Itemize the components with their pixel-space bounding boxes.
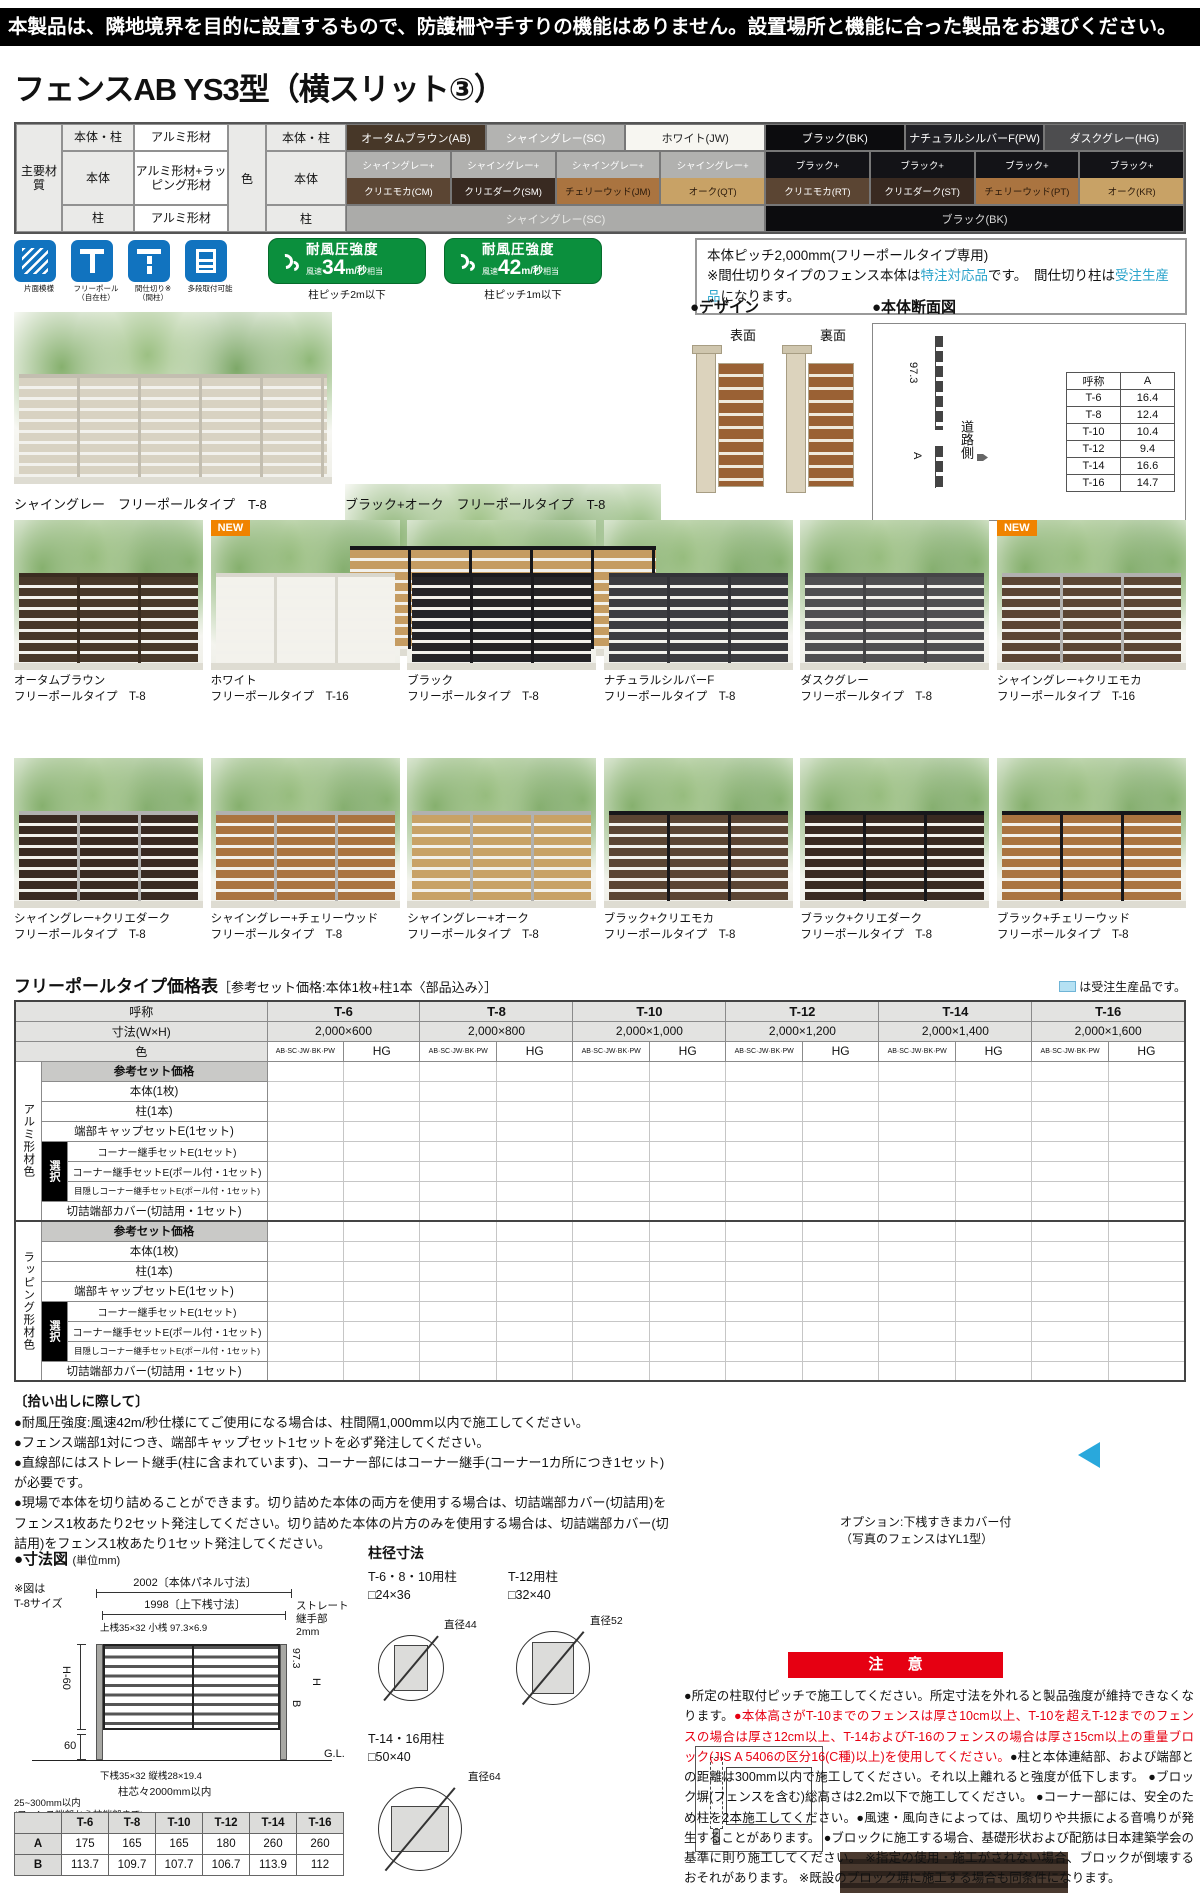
price-cell — [496, 1281, 572, 1301]
price-cell — [344, 1221, 420, 1241]
price-cell — [1032, 1161, 1108, 1181]
notes-title: 〔拾い出しに際して〕 — [14, 1392, 674, 1413]
color-chip-combo: シャイングレー+チェリーウッド(JM) — [556, 151, 661, 205]
price-cell — [726, 1321, 802, 1341]
post-item: T-14・16用柱□50×40 — [368, 1731, 444, 1766]
price-cell — [726, 1281, 802, 1301]
price-cell — [1108, 1241, 1185, 1261]
xsec-row: T-129.4 — [1067, 441, 1175, 458]
ab-cell: 107.7 — [156, 1855, 203, 1876]
material-row-value: アルミ形材 — [134, 205, 228, 232]
post-item: T-6・8・10用柱□24×36 — [368, 1569, 457, 1604]
price-cell — [1108, 1121, 1185, 1141]
card-caption: ダスクグレーフリーポールタイプ T-8 — [800, 674, 989, 705]
price-cell — [1032, 1261, 1108, 1281]
price-header-row: 呼称T-6T-8T-10T-12T-14T-16 — [15, 1001, 1185, 1021]
post-dia-label: 直径52 — [590, 1613, 623, 1628]
price-cell — [879, 1221, 955, 1241]
price-cell — [1108, 1061, 1185, 1081]
ab-cell: 106.7 — [203, 1855, 250, 1876]
price-cell — [726, 1161, 802, 1181]
price-cell — [420, 1181, 496, 1201]
price-cell — [879, 1121, 955, 1141]
price-cell — [573, 1081, 649, 1101]
ab-col: T-12 — [203, 1813, 250, 1834]
combo-wood: オーク(QT) — [661, 178, 764, 204]
xsec-name: T-6 — [1067, 390, 1121, 407]
fence-graphic — [19, 573, 198, 663]
xsec-row: T-812.4 — [1067, 407, 1175, 424]
post-circle — [378, 1635, 444, 1701]
price-cell — [1032, 1341, 1108, 1361]
xsec-col-header: A — [1121, 373, 1175, 390]
feature-icon-block: 多段取付可能 — [185, 240, 235, 303]
ab-row-a: A175165165180260260 — [15, 1834, 344, 1855]
card-caption: ナチュラルシルバーFフリーポールタイプ T-8 — [604, 674, 793, 705]
hero-caption: ブラック+オーク フリーポールタイプ T-8 — [345, 494, 605, 513]
fence-graphic — [412, 573, 591, 663]
price-cell — [496, 1321, 572, 1341]
price-cell — [955, 1081, 1031, 1101]
price-cell — [879, 1261, 955, 1281]
price-cell — [1108, 1361, 1185, 1381]
price-cell — [1032, 1181, 1108, 1201]
price-cell — [802, 1281, 878, 1301]
combo-wood: クリエダーク(SM) — [452, 178, 555, 204]
combo-top: ブラック+ — [1080, 152, 1183, 178]
combo-wood: チェリーウッド(PT) — [976, 178, 1079, 204]
price-row-label: 目隠しコーナー継手セットE(ポール付・1セット) — [67, 1181, 267, 1201]
xsec-name: T-16 — [1067, 475, 1121, 492]
price-cell — [955, 1101, 1031, 1121]
feature-icon-block: 片面模様 — [14, 240, 64, 303]
price-cell — [496, 1201, 572, 1221]
table-row: 本体(1枚) — [15, 1241, 1185, 1261]
post-item: T-12用柱□32×40 — [508, 1569, 558, 1604]
fence-graphic — [19, 374, 327, 477]
price-cell — [649, 1361, 725, 1381]
free-pole-icon — [71, 240, 113, 282]
ab-cell: 113.9 — [250, 1855, 297, 1876]
select-label: 選択 — [41, 1141, 67, 1201]
price-cell — [1032, 1301, 1108, 1321]
price-cell — [267, 1301, 343, 1321]
color-name: シャイングレー+クリエモカ — [997, 675, 1142, 687]
badge-suffix: 相当 — [367, 267, 383, 276]
price-cell — [726, 1101, 802, 1121]
price-cell — [573, 1121, 649, 1141]
color-row-post: 柱 シャイングレー(SC) ブラック(BK) — [266, 205, 1184, 232]
table-row: 切詰端部カバー(切詰用・1セット) — [15, 1201, 1185, 1221]
edge-note-1: 25~300mm以内 — [14, 1798, 81, 1809]
price-cell — [573, 1221, 649, 1241]
price-cell — [802, 1241, 878, 1261]
dim-h60: H-60 — [60, 1666, 72, 1690]
section-profile-lower — [935, 446, 943, 488]
info-text: ※間仕切りタイプのフェンス本体は — [707, 268, 921, 283]
color-chip-combo: ブラック+クリエダーク(ST) — [870, 151, 975, 205]
dim-line — [96, 1592, 292, 1593]
price-cell — [649, 1081, 725, 1101]
price-cell — [420, 1341, 496, 1361]
card-caption: ブラック+チェリーウッドフリーポールタイプ T-8 — [997, 912, 1186, 943]
joint-label-1: ストレート継手部 — [296, 1600, 349, 1625]
color-name: ナチュラルシルバーF — [604, 675, 715, 687]
price-cell — [1032, 1061, 1108, 1081]
price-cell — [267, 1361, 343, 1381]
dims-note: ※図はT-8サイズ — [14, 1582, 63, 1612]
new-badge: NEW — [211, 520, 251, 536]
color-chip-combo: シャイングレー+オーク(QT) — [660, 151, 765, 205]
price-cell — [802, 1181, 878, 1201]
dim-b: B — [290, 1700, 302, 1707]
design-back-figure: 裏面 — [780, 325, 858, 493]
price-cell — [344, 1241, 420, 1261]
caution-black: ●柱と本体連結部、および端部との距離は300mm以内で施工してください。それ以上… — [684, 1750, 1194, 1886]
price-cell — [496, 1121, 572, 1141]
group-label-aluminum: アルミ形材色 — [15, 1061, 41, 1221]
ab-col: T-10 — [156, 1813, 203, 1834]
fence-photo: NEW — [211, 520, 400, 670]
type-name: フリーポールタイプ T-8 — [800, 691, 932, 703]
badge-unit: m/秒 — [345, 266, 367, 277]
price-cell — [267, 1101, 343, 1121]
badge-title: 耐風圧強度 — [482, 243, 559, 257]
feature-icons: 片面模様 フリーポール（自在柱） 間仕切り※（間柱） 多段取付可能 — [14, 240, 235, 303]
hero-photo — [14, 312, 332, 484]
color-chip-combo: シャイングレー+クリエダーク(SM) — [451, 151, 556, 205]
price-cell — [267, 1161, 343, 1181]
post-diameter-section: 柱径寸法 T-6・8・10用柱□24×36 直径44 T-12用柱□32×40 … — [368, 1543, 658, 1563]
price-cell — [267, 1061, 343, 1081]
price-cell — [802, 1301, 878, 1321]
legend-text: は受注生産品です。 — [1079, 978, 1186, 995]
price-cell — [649, 1261, 725, 1281]
fence-graphic — [412, 811, 591, 901]
post-size: □50×40 — [368, 1750, 411, 1764]
price-cell — [1108, 1301, 1185, 1321]
ab-row-label: B — [15, 1855, 62, 1876]
fence-photo — [997, 758, 1186, 908]
price-cell — [420, 1321, 496, 1341]
info-text: 間仕切り柱は — [1020, 268, 1115, 283]
price-cell — [496, 1361, 572, 1381]
color-name: シャイングレー+クリエダーク — [14, 913, 170, 925]
caution-section: 注 意 ●所定の柱取付ピッチで施工してください。所定寸法を外れると製品強度が維持… — [684, 1652, 1194, 1889]
info-text: です。 — [988, 268, 1020, 283]
price-cell — [879, 1101, 955, 1121]
dims-unit: (単位mm) — [73, 1555, 121, 1567]
fence-graphic — [1002, 811, 1181, 901]
color-code-cell: HG — [955, 1041, 1031, 1061]
price-cell — [802, 1361, 878, 1381]
table-row: 本体(1枚) — [15, 1081, 1185, 1101]
wind-badge-2: 耐風圧強度 風速42m/秒相当 柱ピッチ1m以下 — [444, 238, 602, 302]
design-front-figure: 表面 — [690, 325, 768, 493]
product-card: ダスクグレーフリーポールタイプ T-8 — [800, 520, 989, 705]
price-cell — [955, 1201, 1031, 1221]
price-cell — [1108, 1261, 1185, 1281]
price-cell — [955, 1161, 1031, 1181]
price-cell — [420, 1281, 496, 1301]
fence-photo — [407, 520, 596, 670]
combo-wood: チェリーウッド(JM) — [557, 178, 660, 204]
badge-suffix: 相当 — [543, 267, 559, 276]
price-cell — [649, 1241, 725, 1261]
picking-notes: 〔拾い出しに際して〕 ●耐風圧強度:風速42m/秒仕様にてご使用になる場合は、柱… — [14, 1392, 674, 1554]
price-cell — [344, 1341, 420, 1361]
fence-photo — [800, 520, 989, 670]
price-cell — [726, 1141, 802, 1161]
price-cell — [573, 1201, 649, 1221]
color-header: 色 — [15, 1041, 267, 1061]
xsec-val: 9.4 — [1121, 441, 1175, 458]
color-name: ダスクグレー — [800, 675, 869, 687]
type-name: フリーポールタイプ T-8 — [14, 929, 146, 941]
fence-photo — [211, 758, 400, 908]
material-header: 主要材質 — [16, 124, 62, 232]
price-cell — [267, 1341, 343, 1361]
price-cell — [879, 1241, 955, 1261]
dims-note-2: T-8サイズ — [14, 1598, 63, 1610]
type-name: フリーポールタイプ T-8 — [211, 929, 343, 941]
price-cell — [573, 1101, 649, 1121]
color-chip: オータムブラウン(AB) — [346, 124, 486, 151]
price-cell — [802, 1321, 878, 1341]
price-cell — [496, 1141, 572, 1161]
table-row: 端部キャップセットE(1セット) — [15, 1281, 1185, 1301]
cross-section: ●本体断面図 97.3 A 道路側 呼称A T-616.4 T-812.4 T-… — [872, 296, 1186, 521]
size-cell: 2,000×1,200 — [726, 1021, 879, 1041]
material-row-label: 本体 — [62, 151, 134, 205]
badge-prefix: 風速 — [482, 267, 498, 276]
dim-1998: 1998〔上下桟寸法〕 — [106, 1596, 284, 1612]
price-cell — [573, 1281, 649, 1301]
ab-corner — [15, 1813, 62, 1834]
price-cell — [955, 1341, 1031, 1361]
price-cell — [267, 1241, 343, 1261]
color-chip-combo: シャイングレー+クリエモカ(CM) — [346, 151, 451, 205]
price-cell — [573, 1301, 649, 1321]
card-caption: シャイングレー+クリエダークフリーポールタイプ T-8 — [14, 912, 203, 943]
price-cell — [649, 1341, 725, 1361]
price-cell — [1108, 1081, 1185, 1101]
price-cell — [267, 1181, 343, 1201]
size-cell: 2,000×800 — [420, 1021, 573, 1041]
rail-top-label: 上桟35×32 小桟 97.3×6.9 — [100, 1620, 207, 1634]
type-name: フリーポールタイプ T-8 — [604, 691, 736, 703]
product-card: ブラック+クリエモカフリーポールタイプ T-8 — [604, 758, 793, 943]
xsec-val: 14.7 — [1121, 475, 1175, 492]
col-header: T-10 — [573, 1001, 726, 1021]
price-cell — [726, 1261, 802, 1281]
price-cell — [344, 1061, 420, 1081]
made-to-order-swatch — [1059, 981, 1076, 992]
price-cell — [1108, 1221, 1185, 1241]
note-item: ●フェンス端部1対につき、端部キャップセット1セットを必ず発注してください。 — [14, 1433, 674, 1453]
product-card: シャイングレー+オークフリーポールタイプ T-8 — [407, 758, 596, 943]
post-size: □24×36 — [368, 1588, 411, 1602]
price-title-row: フリーポールタイプ価格表 ［参考セット価格:本体1枚+柱1本〈部品込み〉］ は受… — [14, 972, 1186, 997]
badge-note: 柱ピッチ2m以下 — [268, 287, 426, 302]
price-cell — [649, 1221, 725, 1241]
combo-top: ブラック+ — [871, 152, 974, 178]
joint-label-2: 2mm — [296, 1626, 319, 1638]
right-post — [280, 1644, 287, 1760]
table-row: アルミ形材色参考セット価格 — [15, 1061, 1185, 1081]
price-cell — [649, 1321, 725, 1341]
price-cell — [1032, 1081, 1108, 1101]
new-badge: NEW — [997, 520, 1037, 536]
price-cell — [726, 1301, 802, 1321]
ab-cell: 165 — [156, 1834, 203, 1855]
card-caption: ブラック+クリエモカフリーポールタイプ T-8 — [604, 912, 793, 943]
price-cell — [344, 1101, 420, 1121]
price-cell — [267, 1321, 343, 1341]
price-cell — [1032, 1101, 1108, 1121]
price-cell — [955, 1061, 1031, 1081]
color-name: ブラック+クリエモカ — [604, 913, 714, 925]
fence-photo — [14, 758, 203, 908]
color-chip: シャイングレー(SC) — [486, 124, 626, 151]
type-name: フリーポールタイプ T-8 — [407, 929, 539, 941]
xsec-row: T-1614.7 — [1067, 475, 1175, 492]
price-cell — [573, 1161, 649, 1181]
table-row: 選択コーナー継手セットE(1セット) — [15, 1301, 1185, 1321]
price-cell — [726, 1241, 802, 1261]
color-name: シャイングレー+チェリーウッド — [211, 913, 379, 925]
color-code-cell: AB·SC·JW·BK·PW — [726, 1041, 802, 1061]
price-cell — [1032, 1361, 1108, 1381]
price-cell — [955, 1221, 1031, 1241]
color-name: ホワイト — [211, 675, 257, 687]
price-cell — [267, 1261, 343, 1281]
col-header: T-6 — [267, 1001, 420, 1021]
price-cell — [420, 1061, 496, 1081]
ab-cell: 112 — [297, 1855, 344, 1876]
price-cell — [955, 1121, 1031, 1141]
ab-col: T-16 — [297, 1813, 344, 1834]
price-cell — [496, 1081, 572, 1101]
price-cell — [649, 1061, 725, 1081]
color-row-label: 柱 — [266, 205, 346, 232]
size-cell: 2,000×600 — [267, 1021, 420, 1041]
table-row: 目隠しコーナー継手セットE(ポール付・1セット) — [15, 1341, 1185, 1361]
price-cell — [573, 1241, 649, 1261]
post-name: T-14・16用柱 — [368, 1732, 444, 1746]
post-size: □32×40 — [508, 1588, 551, 1602]
price-table: 呼称T-6T-8T-10T-12T-14T-16 寸法(W×H)2,000×60… — [14, 1000, 1186, 1382]
price-cell — [1108, 1281, 1185, 1301]
price-cell — [573, 1181, 649, 1201]
price-row-label: 柱(1本) — [41, 1101, 267, 1121]
center-joint — [192, 1646, 194, 1728]
product-card: ブラック+チェリーウッドフリーポールタイプ T-8 — [997, 758, 1186, 943]
price-cell — [649, 1181, 725, 1201]
col-header: T-14 — [879, 1001, 1032, 1021]
cross-section-title: ●本体断面図 — [872, 296, 1186, 317]
price-cell — [496, 1301, 572, 1321]
feature-icon-block: 間仕切り※（間柱） — [128, 240, 178, 303]
color-table: 色 本体・柱 オータムブラウン(AB) シャイングレー(SC) ホワイト(JW)… — [228, 124, 1184, 232]
price-cell — [420, 1101, 496, 1121]
material-table: 主要材質 本体・柱 アルミ形材 本体 アルミ形材+ラッピング形材 柱 アルミ形材 — [16, 124, 228, 232]
price-cell — [726, 1061, 802, 1081]
price-cell — [267, 1141, 343, 1161]
color-row-body: 本体 シャイングレー+クリエモカ(CM) シャイングレー+クリエダーク(SM) … — [266, 151, 1184, 205]
dims-note-1: ※図は — [14, 1583, 45, 1595]
color-code-cell: HG — [649, 1041, 725, 1061]
price-cell — [955, 1241, 1031, 1261]
price-row-label: 端部キャップセットE(1セット) — [41, 1121, 267, 1141]
price-cell — [802, 1221, 878, 1241]
type-name: フリーポールタイプ T-16 — [211, 691, 349, 703]
material-row-value: アルミ形材+ラッピング形材 — [134, 151, 228, 205]
fence-photo — [14, 520, 203, 670]
xsec-name: T-8 — [1067, 407, 1121, 424]
price-cell — [955, 1141, 1031, 1161]
joint-label: ストレート継手部2mm — [296, 1600, 356, 1639]
color-name: シャイングレー+オーク — [407, 913, 529, 925]
price-cell — [802, 1341, 878, 1361]
price-row-label: 端部キャップセットE(1セット) — [41, 1281, 267, 1301]
price-row-label: コーナー継手セットE(1セット) — [67, 1301, 267, 1321]
product-card: オータムブラウンフリーポールタイプ T-8 — [14, 520, 203, 705]
price-size-row: 寸法(W×H)2,000×6002,000×8002,000×1,0002,00… — [15, 1021, 1185, 1041]
color-chip-combo: ブラック+チェリーウッド(PT) — [975, 151, 1080, 205]
price-cell — [879, 1081, 955, 1101]
price-row-label: 本体(1枚) — [41, 1241, 267, 1261]
xsec-name: T-14 — [1067, 458, 1121, 475]
price-cell — [573, 1361, 649, 1381]
price-cell — [344, 1141, 420, 1161]
price-cell — [802, 1061, 878, 1081]
color-name: ブラック+クリエダーク — [800, 913, 922, 925]
price-cell — [573, 1141, 649, 1161]
ab-col: T-8 — [109, 1813, 156, 1834]
price-row-label: コーナー継手セットE(ポール付・1セット) — [67, 1161, 267, 1181]
price-cell — [267, 1221, 343, 1241]
wind-badge-1: 耐風圧強度 風速34m/秒相当 柱ピッチ2m以下 — [268, 238, 426, 302]
price-cell — [496, 1161, 572, 1181]
dimension-figure: ●寸法図 (単位mm) ※図はT-8サイズ 2002〔本体パネル寸法〕 1998… — [14, 1548, 354, 1806]
price-cell — [1108, 1341, 1185, 1361]
price-cell — [420, 1121, 496, 1141]
col-header: T-16 — [1032, 1001, 1185, 1021]
price-cell — [879, 1281, 955, 1301]
fence-graphic — [216, 573, 395, 663]
color-name: ブラック — [407, 675, 453, 687]
price-cell — [420, 1241, 496, 1261]
card-caption: ホワイトフリーポールタイプ T-16 — [211, 674, 400, 705]
note-item: ●直線部にはストレート継手(柱に含まれています)、コーナー部にはコーナー継手(コ… — [14, 1453, 674, 1493]
price-cell — [726, 1181, 802, 1201]
ab-row-label: A — [15, 1834, 62, 1855]
price-cell — [496, 1221, 572, 1241]
price-row-label: 本体(1枚) — [41, 1081, 267, 1101]
top-warning-bar: 本製品は、隣地境界を目的に設置するもので、防護柵や手すりの機能はありません。設置… — [0, 8, 1200, 46]
product-card: シャイングレー+チェリーウッドフリーポールタイプ T-8 — [211, 758, 400, 943]
price-cell — [420, 1361, 496, 1381]
type-name: フリーポールタイプ T-8 — [407, 691, 539, 703]
option-caption-line: オプション:下桟すきまカバー付 — [840, 1515, 1011, 1529]
table-row: 選択コーナー継手セットE(1セット) — [15, 1141, 1185, 1161]
price-cell — [344, 1181, 420, 1201]
price-row-label: コーナー継手セットE(1セット) — [67, 1141, 267, 1161]
dim-vline — [80, 1734, 81, 1760]
gl-label: G.L. — [324, 1748, 345, 1760]
table-row: ラッピング形材色参考セット価格 — [15, 1221, 1185, 1241]
